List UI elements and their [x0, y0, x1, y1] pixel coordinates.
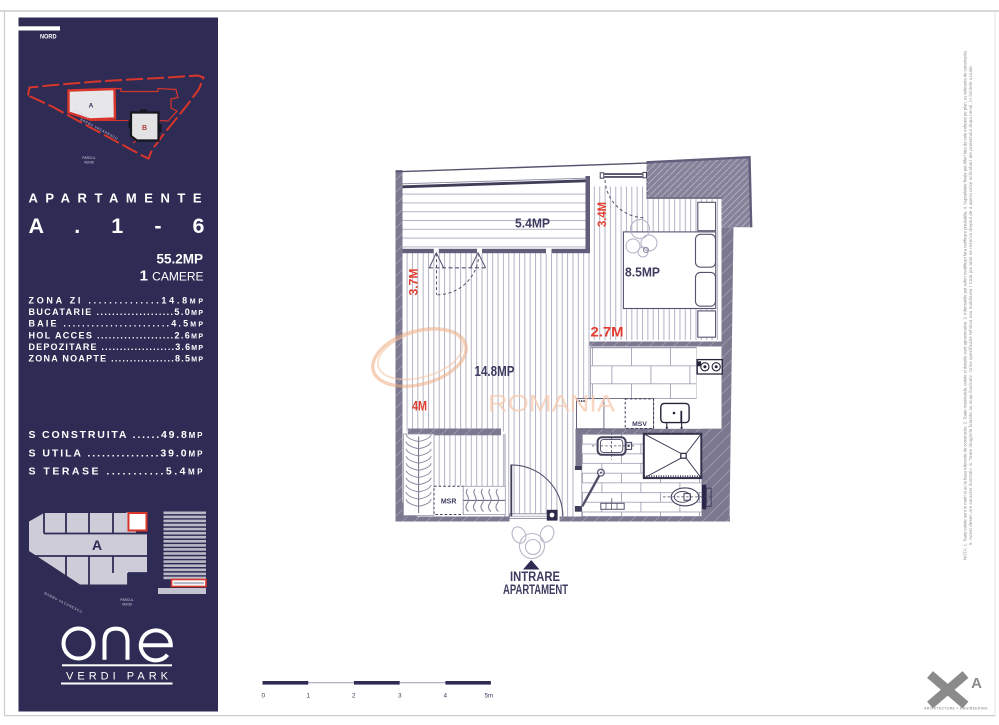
- svg-text:5. Acest desen are caracter il: 5. Acest desen are caracter ilustrativ. …: [968, 65, 973, 545]
- svg-text:MSV: MSV: [632, 421, 647, 428]
- svg-text:A: A: [971, 675, 982, 692]
- svg-text:3.7M: 3.7M: [407, 269, 421, 296]
- svg-text:1 CAMERE: 1 CAMERE: [140, 268, 204, 285]
- svg-text:8.5MP: 8.5MP: [625, 265, 660, 280]
- svg-text:14.8MP: 14.8MP: [475, 363, 515, 380]
- svg-text:ZONA NOAPTE .................8: ZONA NOAPTE .................8.5MP: [29, 354, 204, 364]
- svg-text:APARTAMENT: APARTAMENT: [503, 582, 569, 597]
- svg-text:S CONSTRUITA ......49.8MP: S CONSTRUITA ......49.8MP: [29, 429, 204, 441]
- svg-text:ROMANIA: ROMANIA: [488, 391, 616, 418]
- svg-text:A: A: [89, 103, 94, 110]
- svg-text:HOL ACCES ....................: HOL ACCES ....................2.6MP: [29, 330, 204, 340]
- svg-text:NOTA: 1. Toate cotele sunt in: NOTA: 1. Toate cotele sunt in metri si a…: [963, 50, 968, 560]
- svg-text:1: 1: [307, 693, 311, 700]
- svg-text:MSR: MSR: [441, 499, 457, 506]
- svg-text:5.4MP: 5.4MP: [515, 217, 550, 231]
- svg-text:PARCUL: PARCUL: [82, 156, 95, 160]
- svg-text:PARCUL: PARCUL: [120, 598, 133, 602]
- svg-text:55.2MP: 55.2MP: [156, 252, 203, 267]
- svg-text:ZONA ZI ..............14.8MP: ZONA ZI ..............14.8MP: [29, 296, 204, 306]
- svg-text:5m: 5m: [485, 693, 494, 700]
- svg-text:DEPOZITARE ...................: DEPOZITARE ....................3.6MP: [29, 342, 204, 352]
- svg-text:4M: 4M: [412, 398, 427, 414]
- svg-text:0: 0: [262, 693, 266, 700]
- svg-text:B: B: [142, 125, 147, 132]
- svg-text:NORD: NORD: [40, 33, 57, 40]
- svg-text:2.7M: 2.7M: [591, 324, 624, 340]
- svg-text:A . 1 - 6: A . 1 - 6: [29, 214, 205, 238]
- svg-text:3: 3: [398, 693, 402, 700]
- svg-text:3.4M: 3.4M: [595, 202, 609, 227]
- svg-text:4: 4: [444, 693, 448, 700]
- svg-text:BUCATARIE ....................: BUCATARIE ....................5.0MP: [29, 307, 204, 317]
- svg-text:2: 2: [352, 693, 356, 700]
- svg-text:VERDI: VERDI: [122, 603, 132, 607]
- svg-text:ARCHITECTURE + ENGINEERING: ARCHITECTURE + ENGINEERING: [924, 707, 988, 711]
- svg-text:A: A: [92, 537, 102, 553]
- svg-text:VERDI: VERDI: [84, 161, 94, 165]
- svg-text:S UTILA ...............39.0MP: S UTILA ...............39.0MP: [29, 448, 204, 460]
